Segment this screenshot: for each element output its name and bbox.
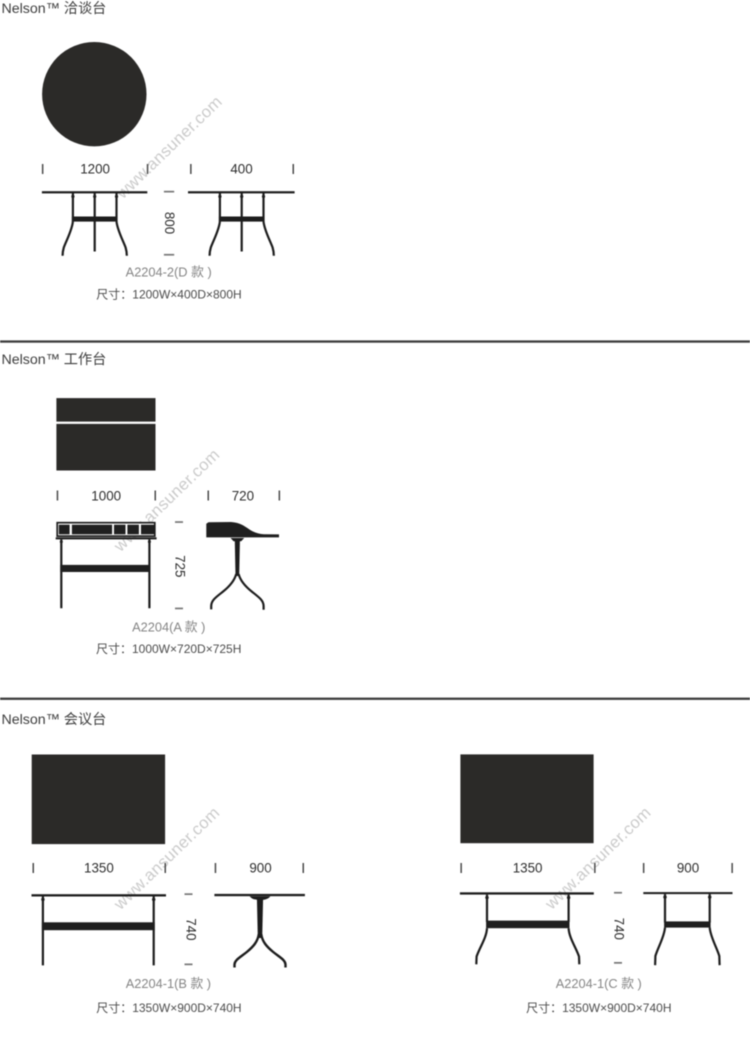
svg-text:尺寸：1000W×720D×725H: 尺寸：1000W×720D×725H xyxy=(96,642,241,656)
svg-text:740: 740 xyxy=(183,918,198,940)
svg-text:900: 900 xyxy=(677,861,699,876)
svg-text:A2204-1(C 款 ): A2204-1(C 款 ) xyxy=(556,976,642,991)
svg-text:A2204-2(D 款 ): A2204-2(D 款 ) xyxy=(126,264,212,279)
svg-text:1350: 1350 xyxy=(84,861,114,876)
svg-text:A2204(A 款 ): A2204(A 款 ) xyxy=(132,620,205,635)
svg-text:Nelson™ 会议台: Nelson™ 会议台 xyxy=(2,712,107,728)
svg-text:尺寸：1350W×900D×740H: 尺寸：1350W×900D×740H xyxy=(96,1001,241,1015)
svg-text:900: 900 xyxy=(249,861,271,876)
svg-text:740: 740 xyxy=(612,918,627,940)
svg-text:Nelson™ 工作台: Nelson™ 工作台 xyxy=(2,352,107,368)
svg-text:1350: 1350 xyxy=(513,861,543,876)
svg-text:1200: 1200 xyxy=(80,162,110,177)
svg-text:A2204-1(B 款 ): A2204-1(B 款 ) xyxy=(126,976,211,991)
svg-text:725: 725 xyxy=(173,555,188,577)
svg-text:尺寸：1350W×900D×740H: 尺寸：1350W×900D×740H xyxy=(526,1001,671,1015)
svg-text:尺寸：1200W×400D×800H: 尺寸：1200W×400D×800H xyxy=(96,288,241,302)
svg-text:720: 720 xyxy=(232,488,254,503)
svg-text:Nelson™ 洽谈台: Nelson™ 洽谈台 xyxy=(2,1,107,17)
svg-text:1000: 1000 xyxy=(91,488,121,503)
svg-text:400: 400 xyxy=(230,162,252,177)
svg-text:800: 800 xyxy=(162,212,177,234)
